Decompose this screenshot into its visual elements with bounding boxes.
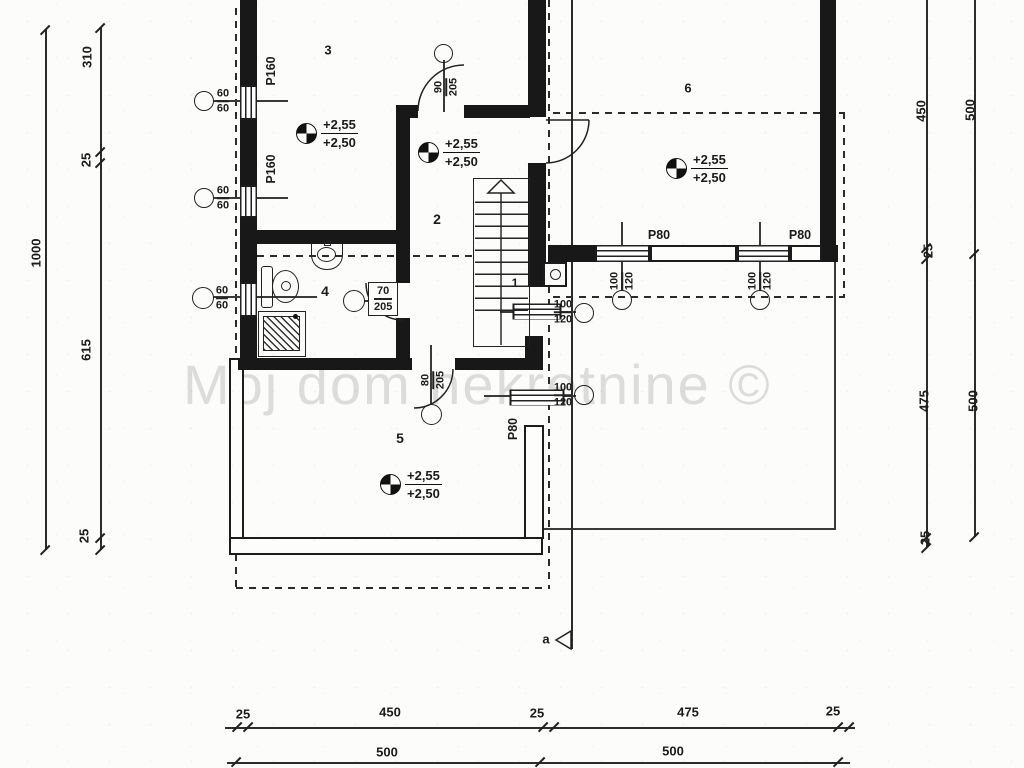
annotation-100-120-1: 100 120 [609, 272, 635, 290]
dim-left-25a: 25 [79, 153, 94, 167]
elevation-upper: +2,55 [321, 117, 358, 134]
dim-bottom-500b: 500 [662, 744, 684, 759]
circle-door-room3 [434, 44, 453, 63]
circle-door-room5 [421, 404, 442, 425]
room-label-5: 5 [396, 430, 404, 446]
annotation-value: 60 [217, 88, 229, 99]
circle-window-left-3 [192, 287, 214, 309]
annotation-value: 120 [624, 272, 635, 290]
annotation-value: 120 [554, 397, 572, 408]
annotation-value: 100 [609, 272, 620, 290]
dim-right-25a: 25 [921, 244, 936, 258]
label-window-p160-1: P160 [264, 56, 278, 85]
annotation-value: 100 [554, 299, 572, 310]
floorplan-page: Moj dom nekretnine © [0, 0, 1024, 768]
annotation-value: 100 [554, 382, 572, 393]
circle-window-hall-east [574, 303, 594, 323]
annotation-value: 60 [217, 103, 229, 114]
section-arrow [556, 631, 571, 649]
annotation-value: 60 [216, 285, 228, 296]
circle-door-bathroom [343, 290, 365, 312]
room-label-2: 2 [433, 211, 441, 227]
label-window-p160-2: P160 [264, 154, 278, 183]
annotation-value: 205 [448, 78, 459, 96]
benchmark-icon [380, 474, 401, 495]
annotation-60-60-2: 60 60 [217, 185, 229, 211]
circle-window-room6-2 [750, 290, 770, 310]
dim-left-615: 615 [79, 339, 94, 361]
stair-direction-arrow [488, 180, 514, 193]
dim-bottom-25b: 25 [530, 706, 544, 721]
dim-right-500a: 500 [963, 99, 978, 121]
annotation-60-60-3: 60 60 [216, 285, 228, 311]
elevation-upper: +2,55 [691, 152, 728, 169]
section-label-a: a [542, 632, 549, 647]
dim-left-outer-1000: 1000 [29, 239, 44, 268]
annotation-value: 120 [762, 272, 773, 290]
label-window-p80-room6-2: P80 [789, 228, 811, 242]
annotation-60-60-1: 60 60 [217, 88, 229, 114]
elevation-lower: +2,50 [405, 485, 442, 501]
dim-bottom-500a: 500 [376, 745, 398, 760]
annotation-value: 70 [377, 285, 389, 297]
room-label-3: 3 [324, 43, 331, 58]
elevation-marker-room2: +2,55 +2,50 [418, 136, 480, 169]
dim-bottom-25c: 25 [826, 704, 840, 719]
annotation-value: 120 [554, 314, 572, 325]
dim-bottom-475: 475 [677, 705, 699, 720]
annotation-value: 80 [420, 374, 431, 386]
annotation-door-80-205: 80 205 [420, 371, 446, 389]
overlay-drawing [0, 0, 1024, 768]
door-swing-room6 [546, 120, 589, 163]
elevation-marker-room3: +2,55 +2,50 [296, 117, 358, 150]
annotation-100-120-2: 100 120 [747, 272, 773, 290]
benchmark-icon [296, 123, 317, 144]
annotation-value: 205 [374, 301, 392, 313]
label-window-p80-room5: P80 [506, 418, 520, 440]
elevation-lower: +2,50 [691, 169, 728, 185]
dim-right-500b: 500 [966, 390, 981, 412]
annotation-value: 60 [217, 185, 229, 196]
label-window-p80-room6-1: P80 [648, 228, 670, 242]
circle-window-room5-east [574, 385, 594, 405]
annotation-value: 100 [747, 272, 758, 290]
annotation-door-90-205: 90 205 [433, 78, 459, 96]
dim-bottom-25a: 25 [236, 707, 250, 722]
annotation-door-70-205: 70 205 [368, 282, 398, 316]
room-label-6: 6 [684, 81, 691, 96]
annotation-value: 90 [433, 81, 444, 93]
circle-window-left-2 [194, 188, 214, 208]
dim-right-450: 450 [914, 100, 929, 122]
elevation-lower: +2,50 [443, 153, 480, 169]
fraction-bar [374, 298, 392, 300]
room-label-4: 4 [321, 283, 329, 299]
annotation-value: 60 [217, 200, 229, 211]
column-circle [550, 269, 561, 280]
annotation-value: 60 [216, 300, 228, 311]
annotation-100-120-3: 100 120 [554, 299, 572, 325]
dim-left-25b: 25 [77, 529, 92, 543]
elevation-upper: +2,55 [443, 136, 480, 153]
elevation-upper: +2,55 [405, 468, 442, 485]
benchmark-icon [666, 158, 687, 179]
room-label-1: 1 [512, 276, 519, 290]
dim-right-25b: 25 [918, 531, 933, 545]
annotation-100-120-4: 100 120 [554, 382, 572, 408]
elevation-lower: +2,50 [321, 134, 358, 150]
annotation-value: 205 [435, 371, 446, 389]
dim-bottom-450: 450 [379, 705, 401, 720]
circle-window-room6-1 [612, 290, 632, 310]
dim-left-310: 310 [80, 46, 95, 68]
circle-window-left-1 [194, 91, 214, 111]
dim-right-475: 475 [917, 390, 932, 412]
elevation-marker-room6: +2,55 +2,50 [666, 152, 728, 185]
elevation-marker-room5: +2,55 +2,50 [380, 468, 442, 501]
benchmark-icon [418, 142, 439, 163]
